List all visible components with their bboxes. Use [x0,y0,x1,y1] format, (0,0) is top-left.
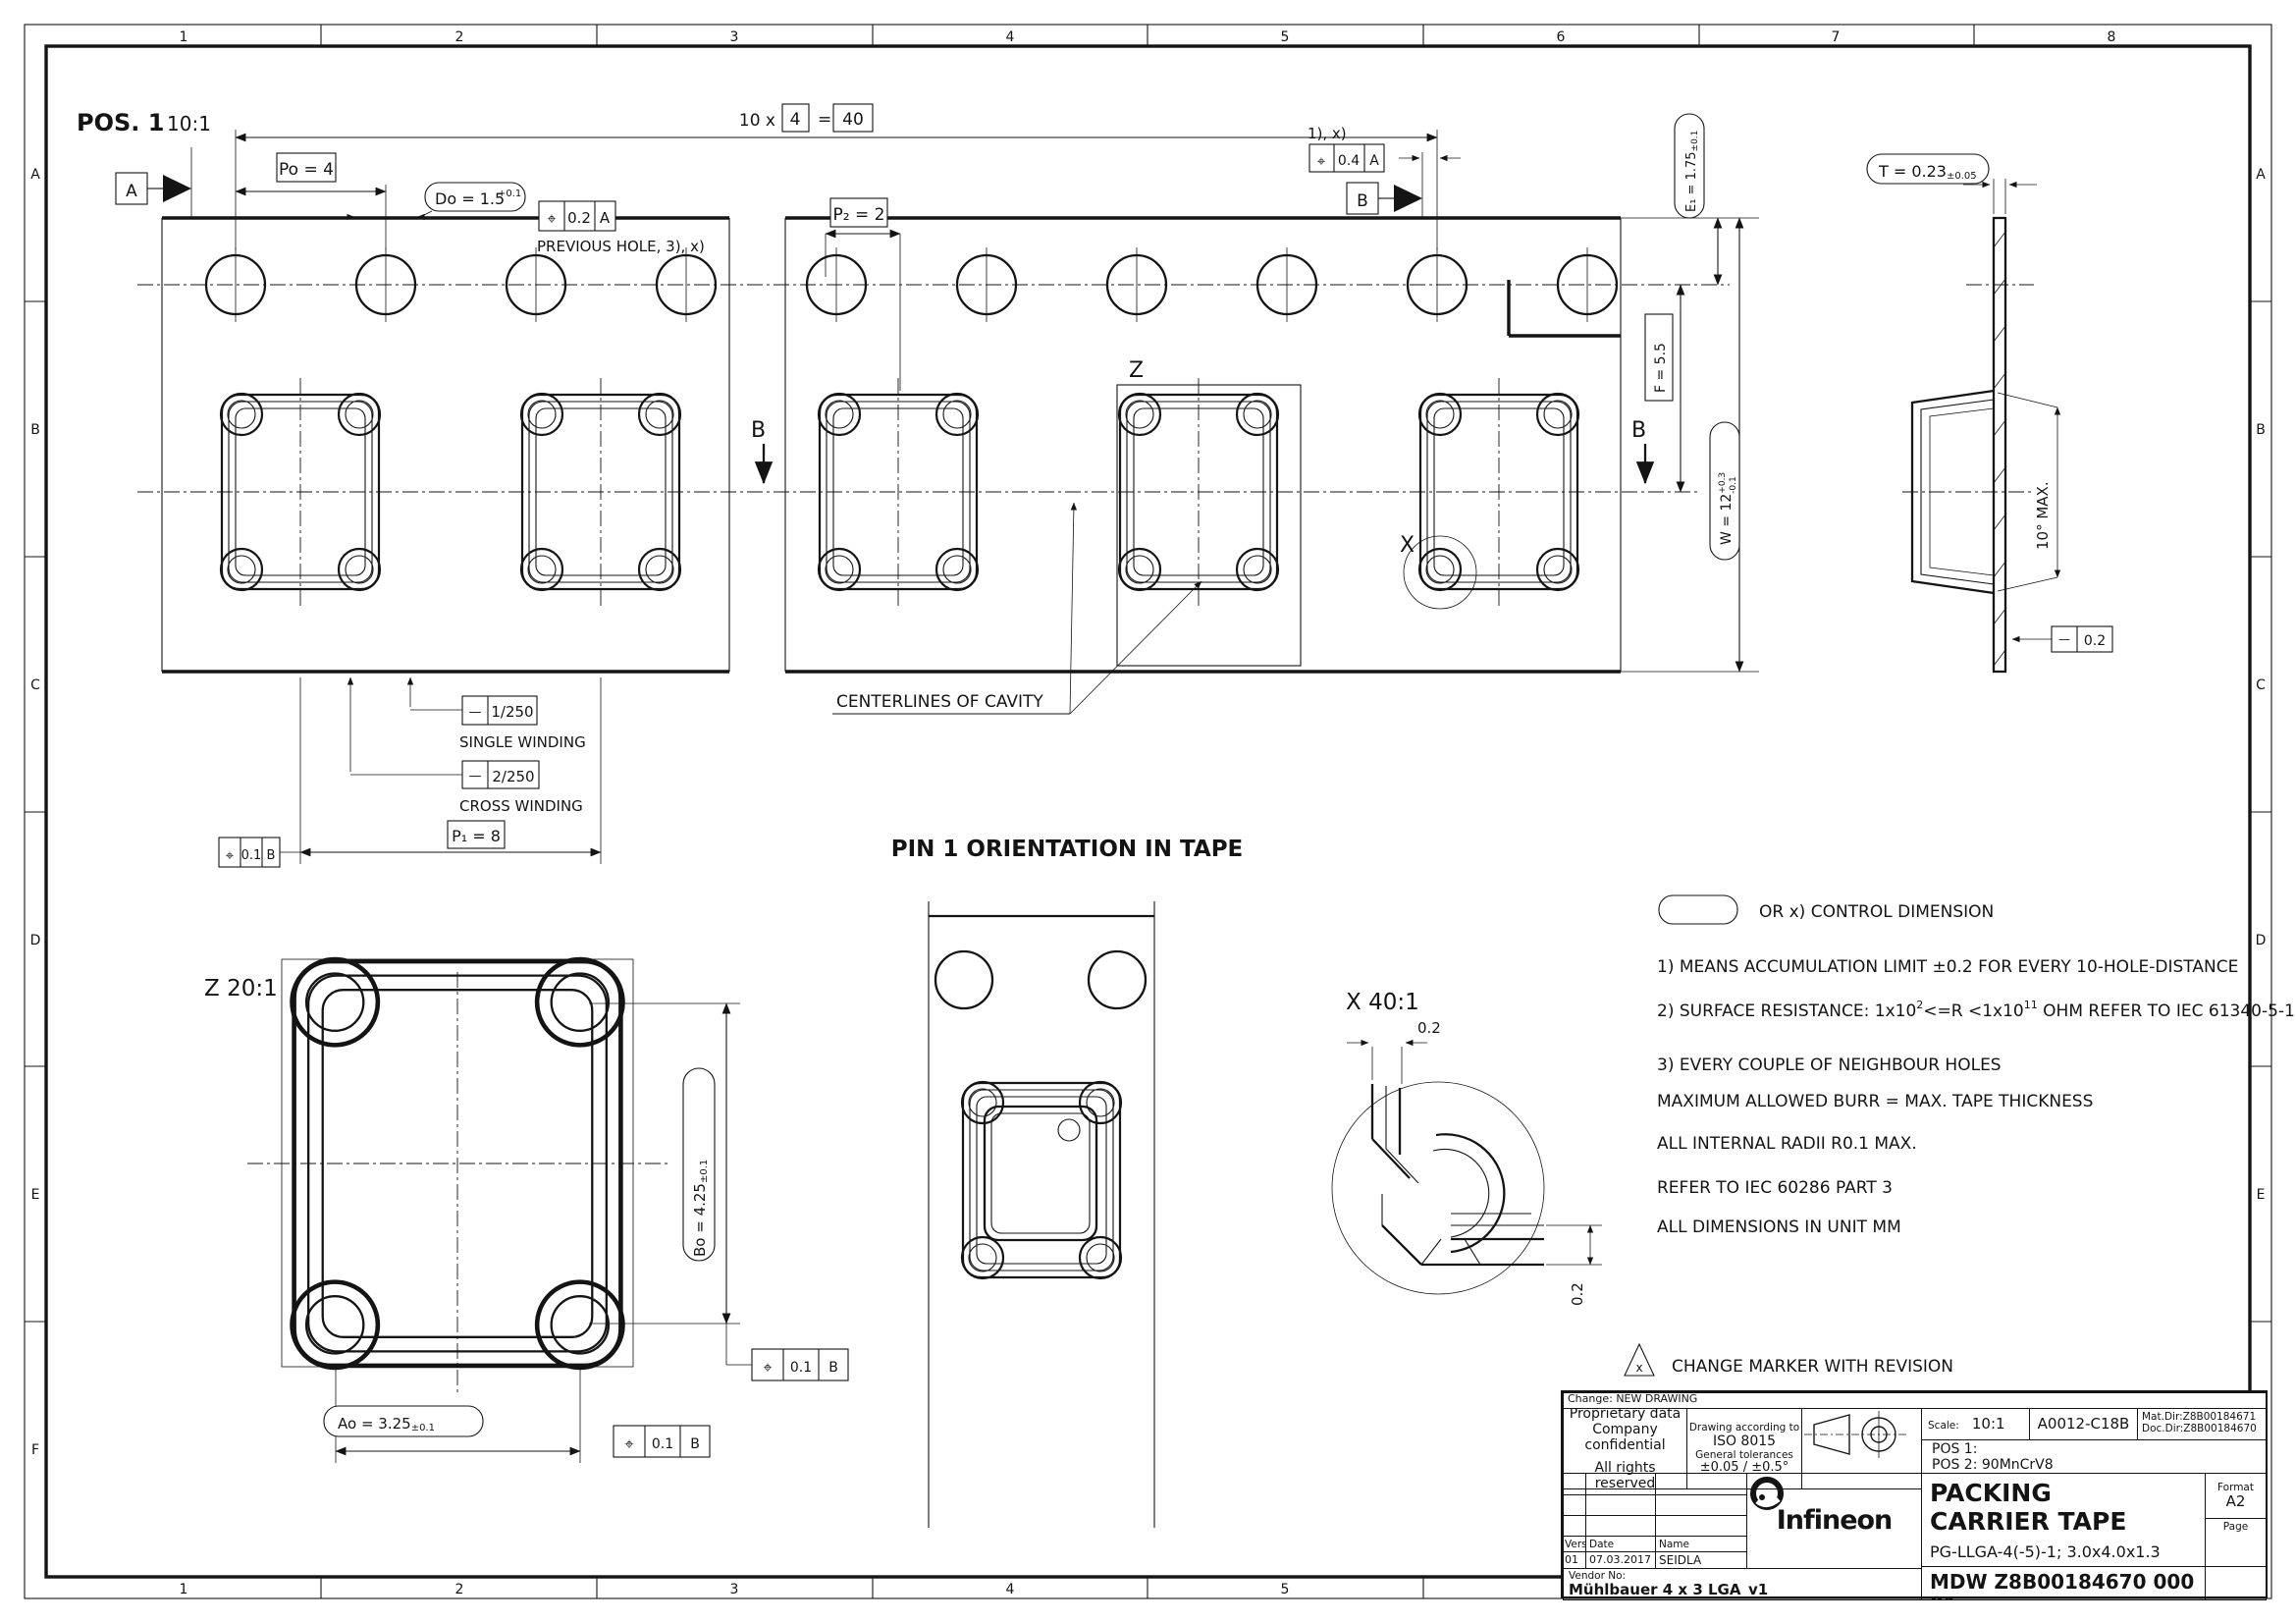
format-value: A2 [2226,1493,2246,1510]
fcf-top-left: ⌖ 0.2 A PREVIOUS HOLE, 3), x) [537,201,705,255]
pos1-view: POS. 1 10:1 Z X [77,104,1759,867]
svg-text:F = 5.5: F = 5.5 [1653,343,1669,393]
svg-text:3: 3 [730,29,739,45]
svg-text:2: 2 [455,1582,464,1597]
pin1-title: PIN 1 ORIENTATION IN TAPE [891,837,1244,862]
svg-text:1: 1 [180,29,188,45]
svg-text:40: 40 [842,110,864,130]
svg-text:1: 1 [180,1582,188,1597]
dim-po: Po = 4 [236,153,386,250]
dim-do: Do = 1.5 +0.1 [332,183,525,217]
x-ref-circle [1404,536,1476,609]
name-label: Name [1659,1539,1689,1550]
svg-text:6: 6 [1557,29,1566,45]
svg-text:1), x): 1), x) [1308,125,1347,142]
dim-angle: 10° MAX. [1998,393,2057,591]
svg-text:SINGLE WINDING: SINGLE WINDING [459,733,586,751]
svg-text:A: A [2256,167,2266,183]
hatching [1994,232,2005,666]
fcf-flatness: — 0.2 [2012,626,2112,652]
x-detail-title: X 40:1 [1346,990,1419,1015]
svg-text:10 x: 10 x [739,111,775,131]
svg-text:=: = [818,110,831,130]
z-detail-title: Z 20:1 [204,976,278,1001]
page-cell: Page [2205,1518,2267,1567]
title-block: Change: NEW DRAWING Proprietary data Com… [1561,1390,2268,1598]
svg-text:B: B [2256,422,2266,438]
code-value: A0012-C18B [2038,1416,2130,1433]
pos-cell: POS 1: POS 2: 90MnCrV8 [1921,1439,2267,1474]
svg-text:⌖: ⌖ [547,209,556,228]
svg-text:A: A [600,209,611,227]
winding-tolerances: — 1/250 SINGLE WINDING — 2/250 CROSS WIN… [350,677,586,815]
svg-text:C: C [30,677,40,693]
title-line2: CARRIER TAPE [1930,1508,2205,1537]
dim-ao: Ao = 3.25±0.1 ⌖ 0.1 B [324,1370,710,1463]
pin1-view: PIN 1 ORIENTATION IN TAPE [891,837,1244,1528]
svg-text:0.2: 0.2 [567,209,591,227]
x-dim-side: 0.2 [1546,1225,1602,1306]
prop-line1: Proprietary data [1570,1408,1681,1422]
note-4: MAXIMUM ALLOWED BURR = MAX. TAPE THICKNE… [1657,1092,2093,1111]
code-cell: A0012-C18B [2029,1408,2138,1440]
pos1-row: POS 1: [1932,1441,2266,1457]
doc-dir: Doc.Dir:Z8B00184670 [2142,1423,2266,1434]
vers-value: 01 [1565,1554,1578,1567]
svg-text:B: B [1631,418,1646,443]
page-label: Page [2206,1521,2266,1533]
centerlines-callout: CENTERLINES OF CAVITY [832,503,1201,714]
svg-text:D: D [2256,933,2267,948]
note-legend: OR x) CONTROL DIMENSION [1759,902,1994,922]
date-label: Date [1589,1539,1614,1550]
svg-text:4: 4 [790,110,801,130]
z-detail-view: Z 20:1 Bo = 4.25±0.1 ⌖ 0.1 B Ao = 3.25±0… [204,959,848,1463]
svg-text:P₁ = 8: P₁ = 8 [452,827,501,845]
control-dimension-oval-icon [1659,895,1737,924]
drawing-canvas: 12 34 56 78 12 34 5 AB CD EF AB CD EF PO… [0,0,2296,1623]
cross-section-view: T = 0.23±0.05 10° MAX. — 0.2 [1867,154,2112,672]
svg-text:5: 5 [1281,1582,1290,1597]
change-marker: x CHANGE MARKER WITH REVISION [1625,1344,1953,1377]
svg-text:4: 4 [1006,1582,1015,1597]
x-detail-view: X 40:1 0.2 0.2 [1332,990,1602,1306]
svg-text:0.2: 0.2 [1417,1019,1441,1037]
svg-text:PREVIOUS HOLE, 3), x): PREVIOUS HOLE, 3), x) [537,238,705,255]
note-1: 1) MEANS ACCUMULATION LIMIT ±0.2 FOR EVE… [1657,957,2238,977]
svg-text:0.1: 0.1 [652,1436,673,1452]
svg-text:0.2: 0.2 [1569,1282,1586,1306]
svg-text:x: x [1635,1361,1642,1375]
svg-text:—: — [2058,632,2070,646]
subtitle: PG-LLGA-4(-5)-1; 3.0x4.0x1.3 [1930,1543,2205,1561]
svg-text:D: D [30,933,41,948]
datum-a-flag: A [116,147,191,218]
svg-text:B: B [690,1436,700,1452]
notes-block: OR x) CONTROL DIMENSION 1) MEANS ACCUMUL… [1657,895,2295,1237]
svg-text:0.1: 0.1 [241,848,262,863]
svg-text:⌖: ⌖ [763,1358,772,1377]
page-value-cell [2205,1566,2267,1600]
svg-text:—: — [469,705,482,720]
drawing-sheet: 12 34 56 78 12 34 5 AB CD EF AB CD EF PO… [0,0,2296,1623]
revision-grid: Vers Date Name 01 07.03.2017 SEIDLA [1563,1473,1747,1569]
svg-text:C: C [2256,677,2266,693]
name-value: SEIDLA [1659,1554,1701,1568]
dim-p2: P₂ = 2 [826,198,900,391]
svg-text:Po = 4: Po = 4 [279,160,334,180]
std-line1: Drawing according to [1689,1422,1799,1434]
svg-text:CHANGE MARKER WITH REVISION: CHANGE MARKER WITH REVISION [1672,1357,1953,1377]
tape-cavities [221,378,1578,607]
svg-text:CENTERLINES OF CAVITY: CENTERLINES OF CAVITY [836,692,1043,712]
svg-text:A: A [30,167,40,183]
svg-text:1/250: 1/250 [491,703,533,721]
pin1-dot [1058,1119,1080,1141]
dim-p1: P₁ = 8 ⌖ 0.1 B [219,677,601,867]
dim-10x4: 10 x 4 = 40 [236,104,1437,250]
logo-cell: Infineon [1746,1473,1922,1569]
infineon-logo-icon [1747,1474,1787,1513]
pos1-title: POS. 1 [77,109,164,136]
infineon-logo-text: Infineon [1777,1505,1893,1536]
z-ref-label: Z [1129,358,1144,383]
x-ref-label: X [1400,533,1415,558]
svg-text:P₂ = 2: P₂ = 2 [833,205,885,225]
svg-text:A: A [1369,153,1379,169]
x-dim-top: 0.2 [1347,1019,1441,1084]
note-2: 2) SURFACE RESISTANCE: 1x102<=R <1x1011 … [1657,999,2295,1021]
docno-cell: MDW Z8B00184670 000 01 [1921,1566,2206,1600]
scale-cell: Scale: 10:1 [1921,1408,2030,1440]
svg-text:Do = 1.5: Do = 1.5 [435,189,505,208]
date-value: 07.03.2017 [1589,1554,1651,1567]
tape-outline [162,218,1621,672]
svg-text:10° MAX.: 10° MAX. [2034,481,2052,550]
vers-label: Vers [1565,1539,1587,1550]
fcf-top-right: 1), x) ⌖ 0.4 A [1308,125,1461,218]
svg-text:⌖: ⌖ [1317,152,1326,170]
svg-text:4: 4 [1006,29,1015,45]
svg-text:0.4: 0.4 [1338,153,1360,169]
note-6: REFER TO IEC 60286 PART 3 [1657,1178,1893,1198]
vendor-value: Mühlbauer 4 x 3 LGA_v1 [1569,1582,1921,1598]
x-detail-corner [1372,1084,1544,1265]
title-cell: PACKING CARRIER TAPE PG-LLGA-4(-5)-1; 3.… [1921,1473,2206,1567]
svg-text:5: 5 [1281,29,1290,45]
svg-text:0.1: 0.1 [790,1360,812,1376]
matdoc-cell: Mat.Dir:Z8B00184671 Doc.Dir:Z8B00184670 [2137,1408,2267,1440]
dim-bo: Bo = 4.25±0.1 ⌖ 0.1 B [589,1003,848,1380]
svg-text:F: F [31,1442,39,1458]
mat-dir: Mat.Dir:Z8B00184671 [2142,1411,2266,1423]
note-5: ALL INTERNAL RADII R0.1 MAX. [1657,1134,1917,1154]
svg-text:B: B [267,848,276,863]
projection-symbol-icon [1802,1409,1910,1460]
svg-text:+0.1: +0.1 [498,189,521,199]
svg-text:2: 2 [455,29,464,45]
svg-text:⌖: ⌖ [226,846,235,864]
dim-t: T = 0.23±0.05 [1867,154,2037,214]
pos1-scale: 10:1 [167,112,211,135]
svg-text:⌖: ⌖ [624,1434,633,1453]
datum-b-flag: B [1347,183,1422,214]
svg-text:3: 3 [730,1582,739,1597]
scale-label: Scale: [1928,1420,1959,1432]
svg-text:2/250: 2/250 [492,768,534,785]
svg-text:7: 7 [1832,29,1841,45]
svg-text:B: B [828,1360,838,1376]
title-line1: PACKING [1930,1480,2205,1508]
doc-number: MDW Z8B00184670 000 01 [1930,1571,2205,1600]
note-3: 3) EVERY COUPLE OF NEIGHBOUR HOLES [1657,1055,2002,1075]
note-7: ALL DIMENSIONS IN UNIT MM [1657,1217,1901,1237]
svg-text:8: 8 [2108,29,2116,45]
prop-line2: Company confidential [1564,1422,1686,1453]
change-row: Change: NEW DRAWING [1563,1392,2267,1409]
svg-text:—: — [469,769,482,784]
change-text: Change: NEW DRAWING [1568,1392,1697,1405]
std-line2: ISO 8015 [1713,1434,1776,1449]
format-cell: Format A2 [2205,1473,2267,1519]
pos2-row: POS 2: 90MnCrV8 [1932,1457,2266,1473]
vendor-cell: Vendor No: Mühlbauer 4 x 3 LGA_v1 [1563,1568,1922,1600]
svg-text:CROSS WINDING: CROSS WINDING [459,797,583,815]
svg-text:E: E [31,1187,40,1203]
svg-text:A: A [126,182,137,201]
svg-text:B: B [1357,191,1368,211]
svg-text:E: E [2257,1187,2266,1203]
scale-value: 10:1 [1972,1415,2005,1433]
svg-text:0.2: 0.2 [2084,633,2106,649]
dim-right-end: E₁ = 1.75±0.1 F = 5.5 W = 12+0.3-0.1 [1621,114,1759,672]
svg-text:B: B [751,418,766,443]
svg-text:B: B [30,422,40,438]
